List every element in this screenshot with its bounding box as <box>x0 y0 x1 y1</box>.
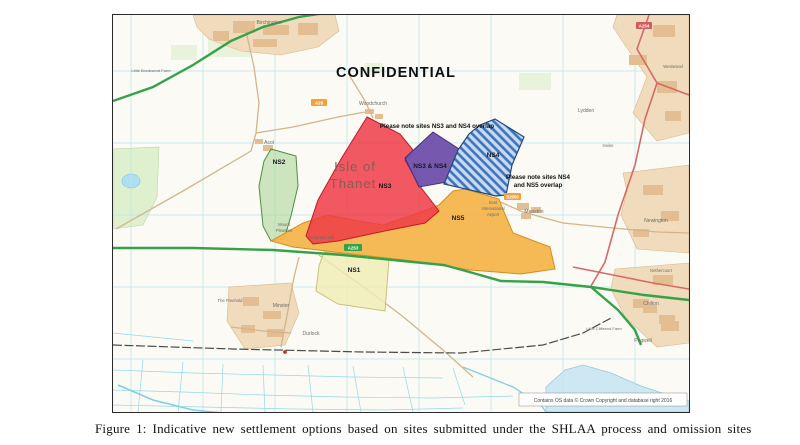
label-manston: Manston <box>524 209 543 215</box>
figure-caption: Figure 1: Indicative new settlement opti… <box>95 421 785 437</box>
site-ns3-ns4-label: NS3 & NS4 <box>413 163 447 170</box>
b2050-badge-label: B2050 <box>506 195 519 200</box>
label-lydden: Lydden <box>578 108 594 114</box>
label-chilton: Chilton <box>643 301 659 307</box>
site-ns1-label: NS1 <box>348 267 361 274</box>
label-westwood: Westwood <box>663 64 683 69</box>
label-airport-2: International <box>481 206 504 211</box>
map-figure: A28 A253 B2050 A254 Birchington Woodchur… <box>112 14 690 413</box>
label-minster: Minster <box>273 303 290 309</box>
minster-station-marker <box>283 350 287 354</box>
label-little-cliffsend-farm: Little Cliffsend Farm <box>586 326 622 331</box>
note-ns3-ns4-overlap: Please note sites NS3 and NS4 overlap <box>380 123 494 130</box>
a28-badge-label: A28 <box>315 101 324 106</box>
copyright-text: Contains OS data © Crown Copyright and d… <box>534 397 673 404</box>
map-canvas: A28 A253 B2050 A254 Birchington Woodchur… <box>113 15 689 412</box>
label-mount-pleasant-1: Mount <box>278 222 290 227</box>
label-telegraph-hill: Telegraph Hill <box>308 235 333 240</box>
label-woodchurch: Woodchurch <box>359 101 387 107</box>
label-little-brooksend-farm: Little Brooksend Farm <box>131 68 171 73</box>
label-durlock: Durlock <box>303 331 320 337</box>
label-airport-3: Airport <box>487 212 500 217</box>
label-airport-1: Kent <box>489 200 498 205</box>
label-nethercourt: Nethercourt <box>650 268 673 273</box>
confidential-watermark: CONFIDENTIAL <box>336 65 456 81</box>
a253-badge-label: A253 <box>348 246 359 251</box>
site-ns4-label: NS4 <box>487 152 500 159</box>
a254-badge-label: A254 <box>639 24 650 29</box>
label-haine: Haine <box>603 143 615 148</box>
label-birchington: Birchington <box>256 20 281 26</box>
note-ns4-ns5-overlap-line1: Please note sites NS4 <box>506 174 571 181</box>
site-ns5-label: NS5 <box>452 215 465 222</box>
site-ns2-label: NS2 <box>273 159 286 166</box>
site-ns3-label: NS3 <box>379 183 392 190</box>
region-label-line2: Thanet <box>330 176 376 191</box>
region-label-line1: Isle of <box>334 159 376 174</box>
label-pegwell: Pegwell <box>634 338 652 344</box>
label-the-freehold: The Freehold <box>218 298 244 303</box>
label-mount-pleasant-2: Pleasant <box>276 228 293 233</box>
label-newington: Newington <box>644 218 668 224</box>
label-acol: Acol <box>264 140 274 146</box>
note-ns4-ns5-overlap-line2: and NS5 overlap <box>514 182 563 189</box>
document-page: A28 A253 B2050 A254 Birchington Woodchur… <box>0 0 800 445</box>
